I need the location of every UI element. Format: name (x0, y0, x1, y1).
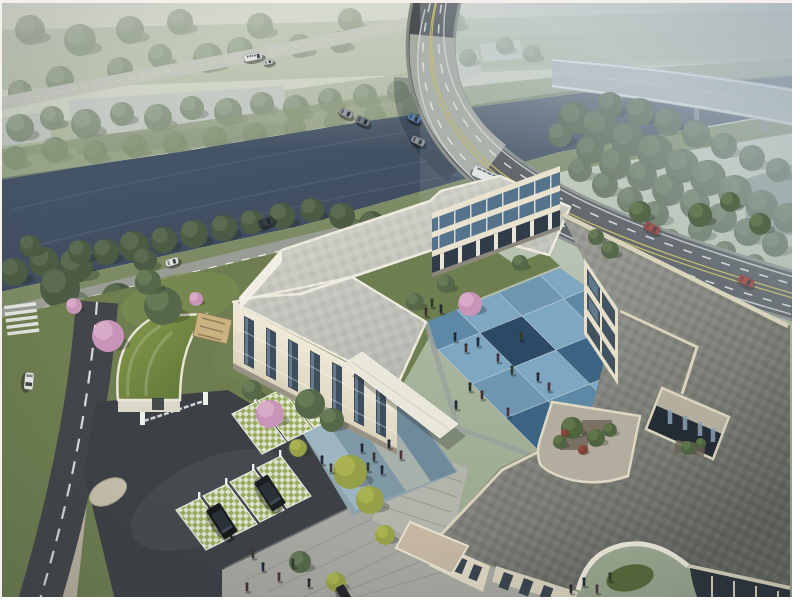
rendering-canvas: Aerial daytime architectural rendering: … (0, 0, 800, 600)
aerial-rendering: Aerial daytime architectural rendering: … (0, 0, 800, 600)
vignette (0, 0, 800, 600)
